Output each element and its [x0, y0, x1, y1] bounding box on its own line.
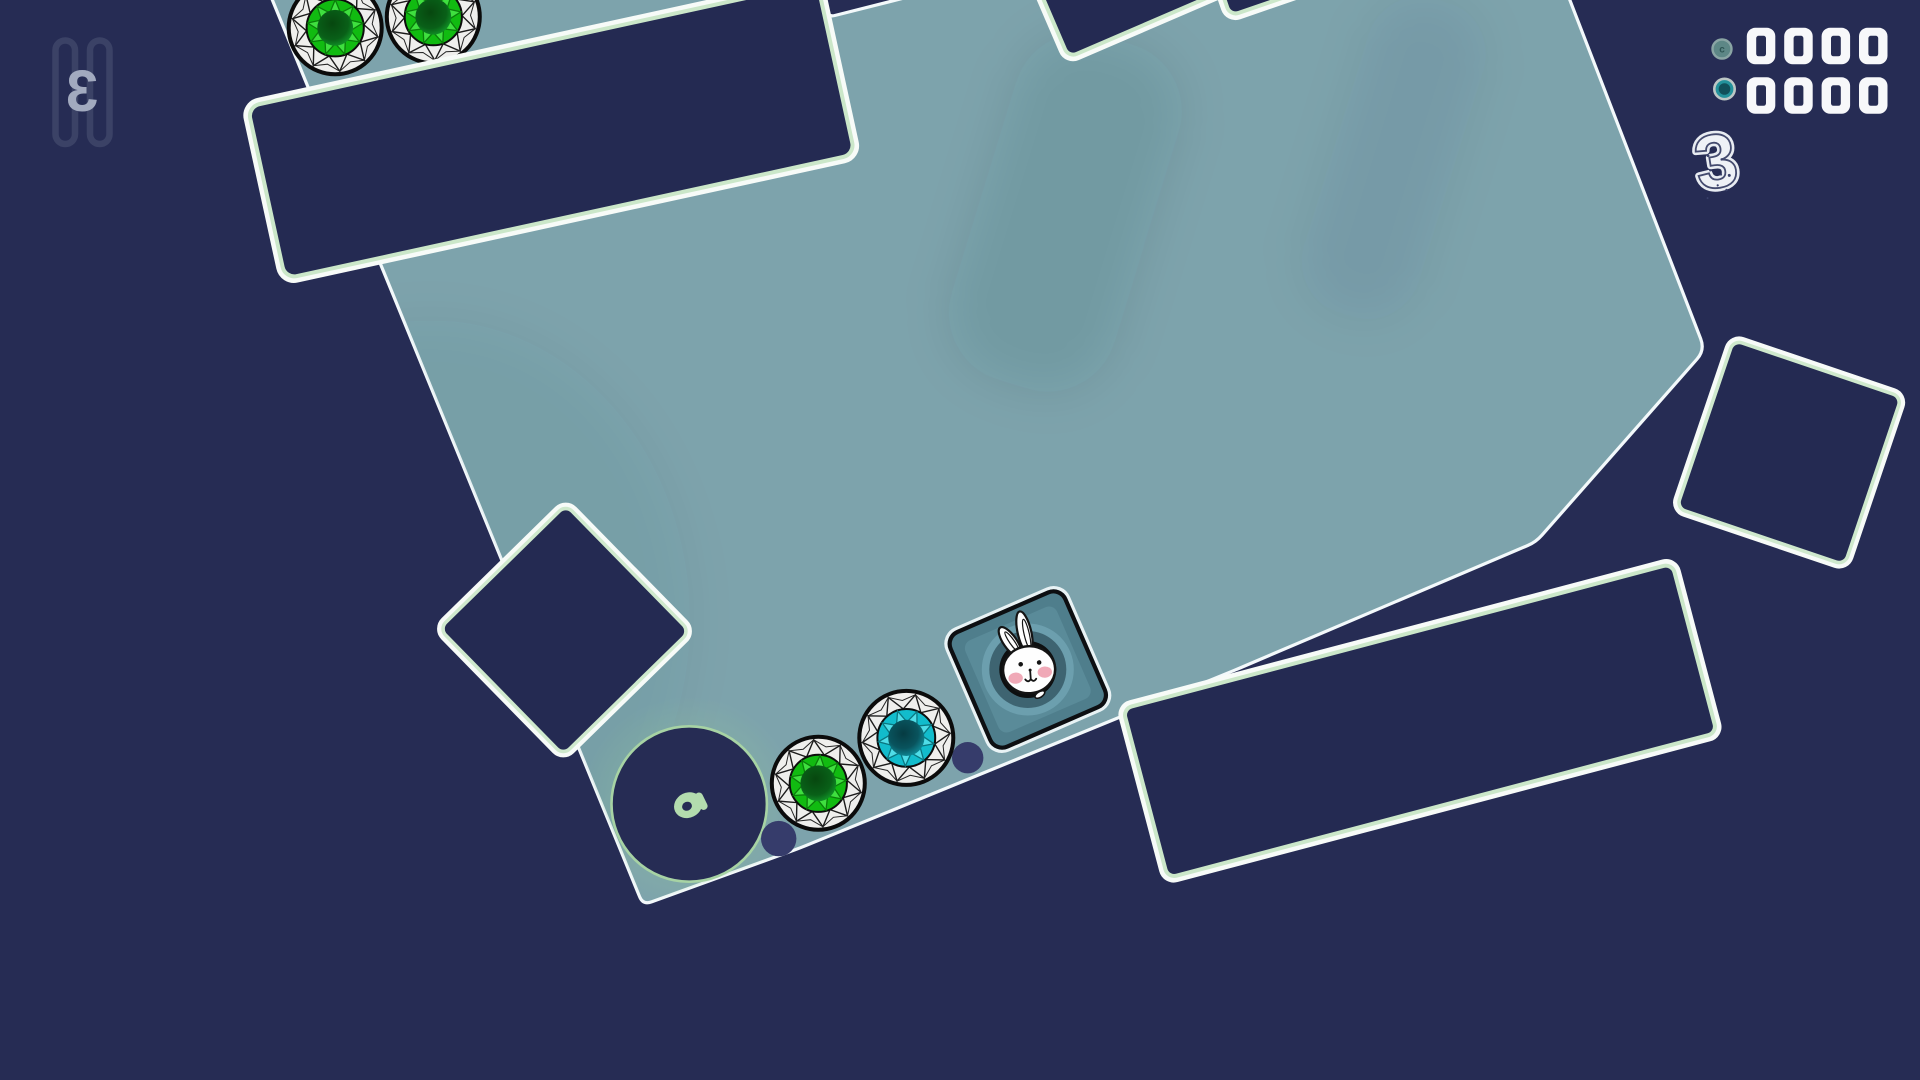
svg-text:c: c	[1719, 45, 1725, 56]
svg-text:3: 3	[66, 59, 98, 124]
